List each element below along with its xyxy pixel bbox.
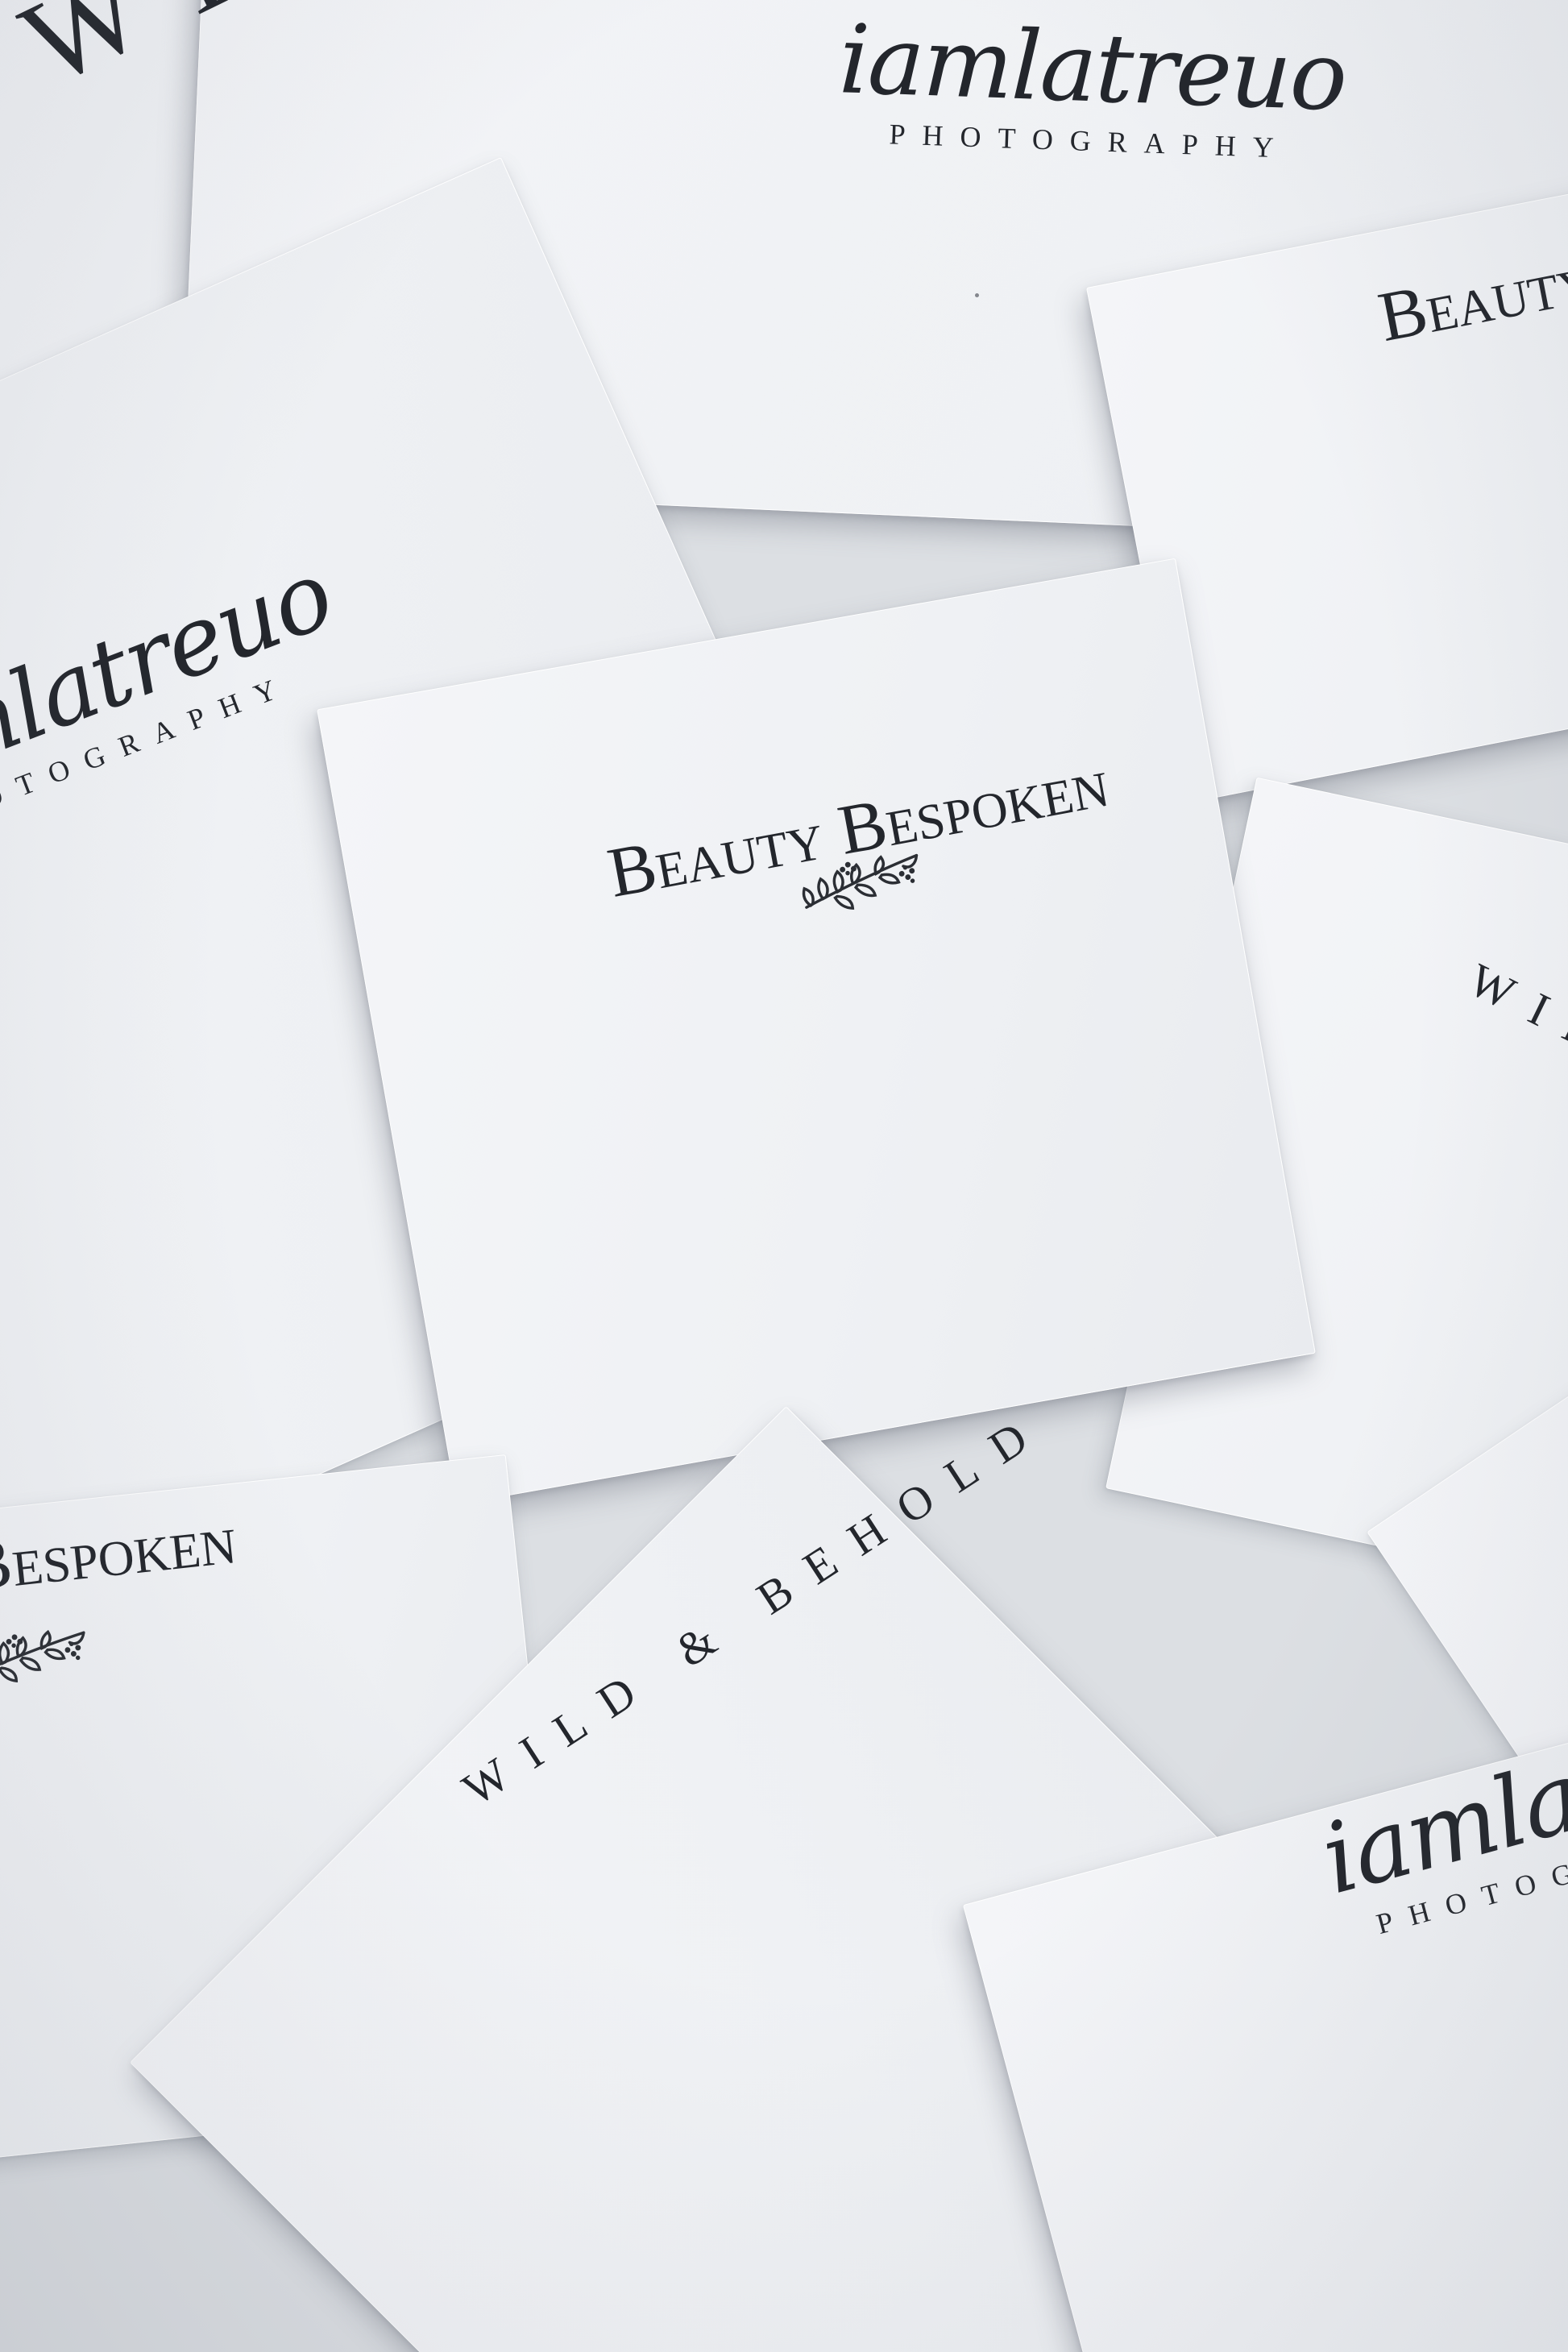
- flatlay-photo: WILD iamlatreuo PHOTOGRAPHY Beauty Bespo…: [0, 0, 1568, 2352]
- notecard-center-beauty: [317, 558, 1316, 1505]
